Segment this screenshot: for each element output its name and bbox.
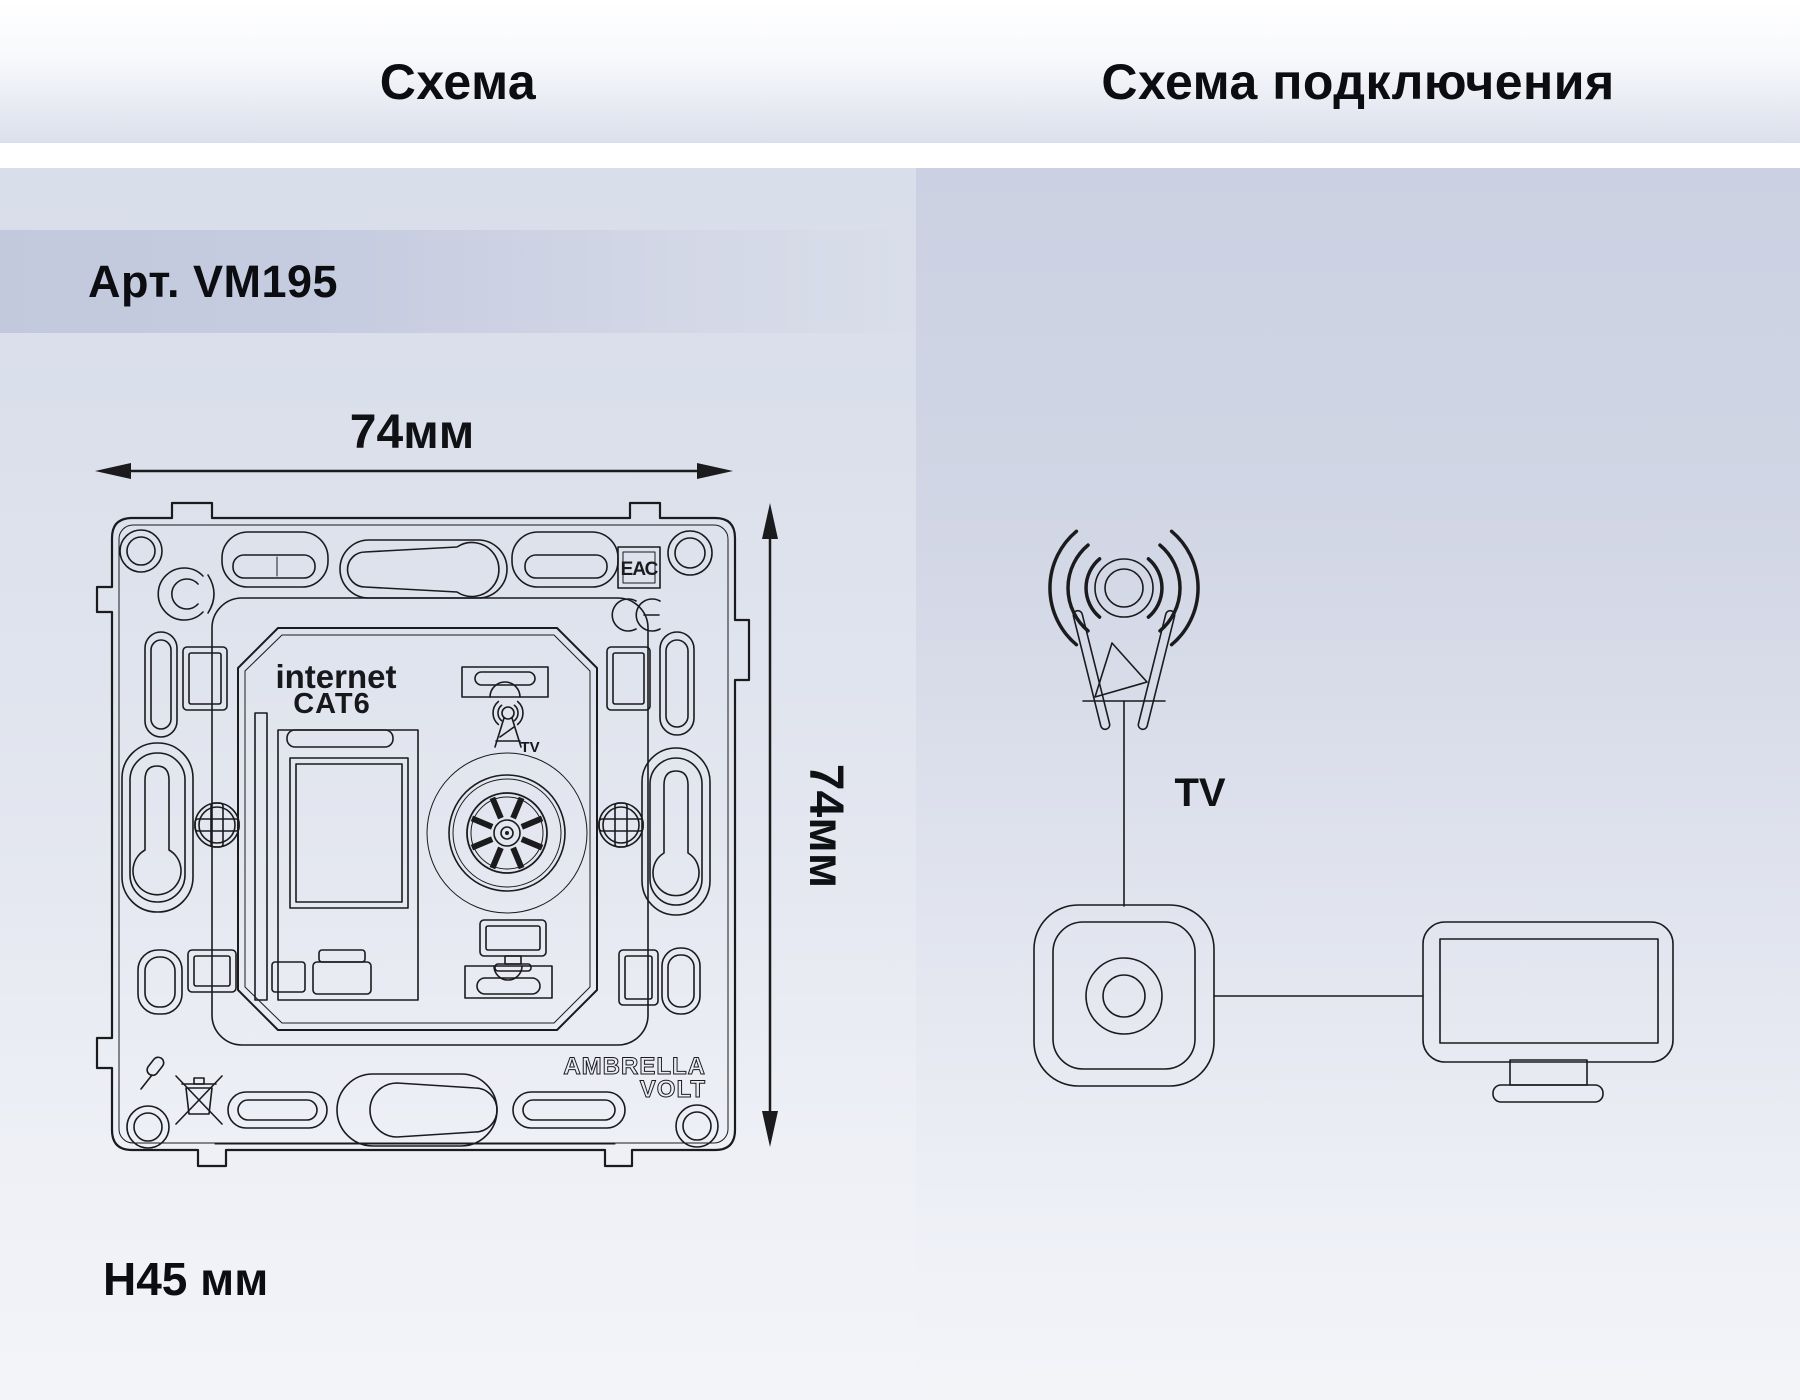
wall-socket-icon — [1034, 905, 1214, 1086]
tv-icon — [1423, 922, 1673, 1102]
tv-antenna-icon: TV — [493, 702, 540, 757]
right-panel-title: Схема подключения — [916, 52, 1800, 112]
left-side-mounts — [122, 632, 236, 1014]
right-side-mounts — [607, 632, 710, 1014]
left-panel-title: Схема — [0, 52, 916, 112]
adjustment-screw-left — [195, 803, 239, 847]
brand-name-line2: VOLT — [640, 1076, 706, 1103]
article-band: Арт. VM195 — [0, 230, 916, 333]
eac-mark: ЕАС — [618, 547, 660, 588]
connection-diagram: TV — [1020, 530, 1720, 1130]
adjustment-screw-right — [599, 803, 643, 847]
screwdriver-icon — [141, 1055, 166, 1089]
height-dimension-label: 74мм — [799, 764, 852, 888]
coax-connector — [427, 753, 587, 913]
divider-band — [0, 143, 1800, 168]
eac-mark-label: ЕАС — [621, 559, 659, 580]
tv-antenna-label: TV — [520, 739, 539, 756]
article-number: Арт. VM195 — [0, 256, 338, 308]
signal-waves — [1050, 531, 1198, 644]
no-waste-icon — [176, 1076, 222, 1124]
product-scheme-page: Схема Схема подключения Арт. VM195 74мм … — [0, 0, 1800, 1400]
monitor-icon — [480, 920, 546, 971]
cat6-port-label: CAT6 — [293, 688, 371, 720]
top-mount-slots — [222, 532, 618, 598]
depth-dimension-label: H45 мм — [103, 1252, 268, 1306]
signal-label: TV — [1174, 771, 1225, 815]
clip-detail-icon — [158, 568, 214, 620]
width-dimension-label: 74мм — [350, 406, 474, 459]
top-fixing-module — [462, 667, 548, 697]
socket-frame-drawing: 74мм 74мм — [55, 400, 815, 1180]
rj45-port — [255, 713, 418, 1000]
width-dimension: 74мм — [95, 406, 733, 479]
bottom-mount-slots — [228, 1074, 625, 1146]
